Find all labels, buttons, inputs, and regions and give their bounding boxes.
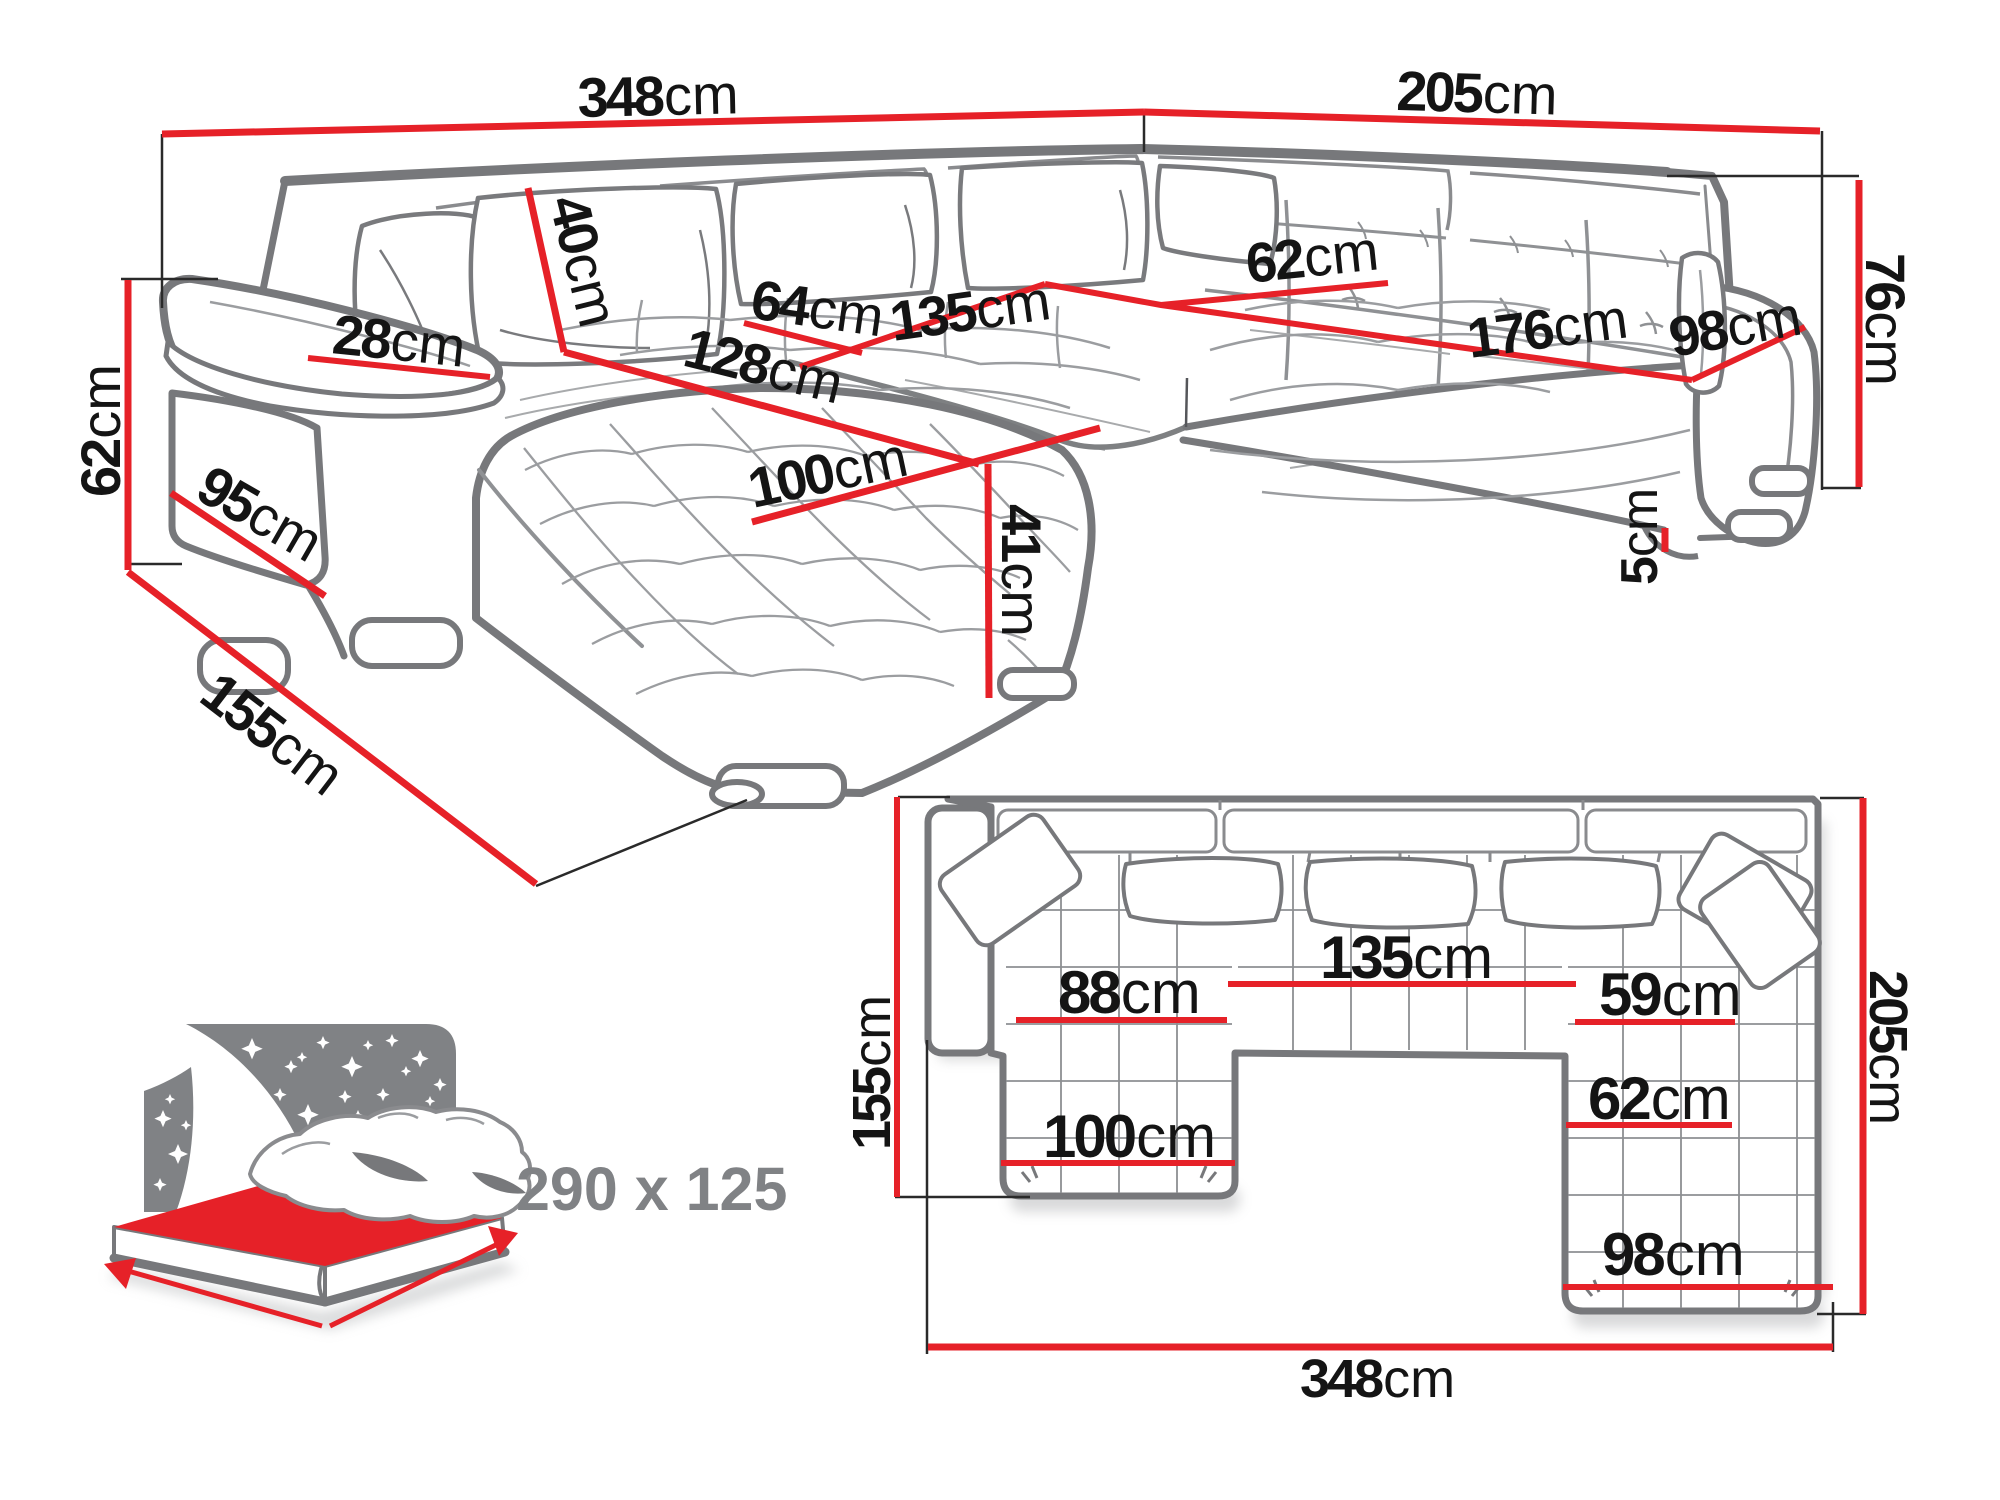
svg-text:205cm: 205cm <box>1396 59 1559 126</box>
svg-text:76cm: 76cm <box>1854 253 1917 386</box>
svg-text:348cm: 348cm <box>1300 1349 1455 1409</box>
svg-text:290 x 125: 290 x 125 <box>516 1155 787 1223</box>
svg-text:348cm: 348cm <box>577 62 739 129</box>
svg-text:41cm: 41cm <box>990 504 1053 637</box>
svg-text:88cm: 88cm <box>1058 959 1201 1026</box>
svg-text:5cm: 5cm <box>1611 488 1669 585</box>
svg-text:205cm: 205cm <box>1858 970 1918 1125</box>
svg-text:100cm: 100cm <box>1043 1103 1216 1170</box>
svg-text:155cm: 155cm <box>842 995 902 1150</box>
svg-text:98cm: 98cm <box>1602 1221 1745 1288</box>
svg-text:135cm: 135cm <box>1320 924 1493 991</box>
svg-text:62cm: 62cm <box>69 364 132 497</box>
svg-text:59cm: 59cm <box>1599 961 1742 1028</box>
svg-text:62cm: 62cm <box>1588 1065 1731 1132</box>
